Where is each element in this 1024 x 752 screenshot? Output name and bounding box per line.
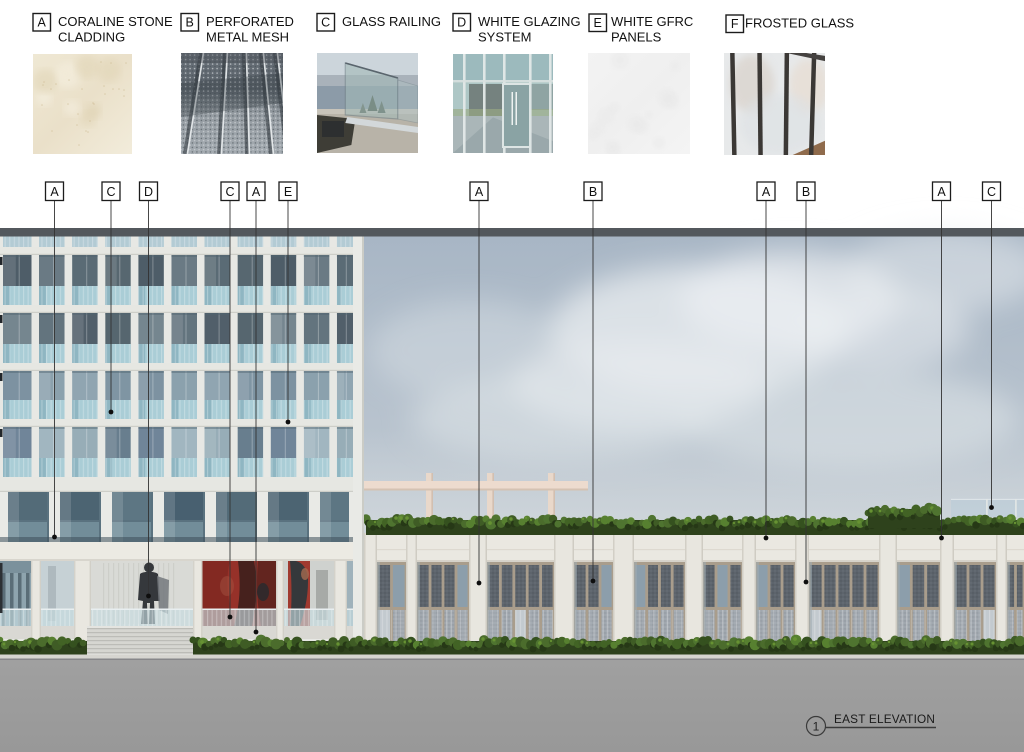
svg-text:CORALINE STONE: CORALINE STONE xyxy=(58,14,173,29)
svg-text:PANELS: PANELS xyxy=(611,30,662,45)
svg-text:SYSTEM: SYSTEM xyxy=(478,30,531,45)
svg-text:B: B xyxy=(186,16,194,30)
svg-text:WHITE GFRC: WHITE GFRC xyxy=(611,14,693,29)
svg-text:C: C xyxy=(321,16,330,30)
svg-text:A: A xyxy=(50,185,59,199)
svg-text:1: 1 xyxy=(813,720,820,734)
svg-text:C: C xyxy=(987,185,996,199)
svg-text:METAL MESH: METAL MESH xyxy=(206,30,289,45)
svg-text:D: D xyxy=(457,16,466,30)
svg-text:E: E xyxy=(594,16,602,30)
svg-text:WHITE GLAZING: WHITE GLAZING xyxy=(478,14,581,29)
svg-text:D: D xyxy=(144,185,153,199)
svg-text:C: C xyxy=(106,185,115,199)
svg-text:A: A xyxy=(38,16,47,30)
svg-text:GLASS RAILING: GLASS RAILING xyxy=(342,14,441,29)
svg-text:PERFORATED: PERFORATED xyxy=(206,14,294,29)
svg-text:E: E xyxy=(284,185,292,199)
svg-text:C: C xyxy=(225,185,234,199)
svg-text:B: B xyxy=(589,185,597,199)
svg-text:FROSTED GLASS: FROSTED GLASS xyxy=(745,16,854,31)
svg-text:F: F xyxy=(731,17,739,31)
svg-text:A: A xyxy=(252,185,261,199)
svg-text:A: A xyxy=(475,185,484,199)
svg-text:B: B xyxy=(802,185,810,199)
svg-text:EAST ELEVATION: EAST ELEVATION xyxy=(834,712,935,726)
svg-text:A: A xyxy=(762,185,771,199)
svg-text:CLADDING: CLADDING xyxy=(58,30,125,45)
svg-text:A: A xyxy=(937,185,946,199)
